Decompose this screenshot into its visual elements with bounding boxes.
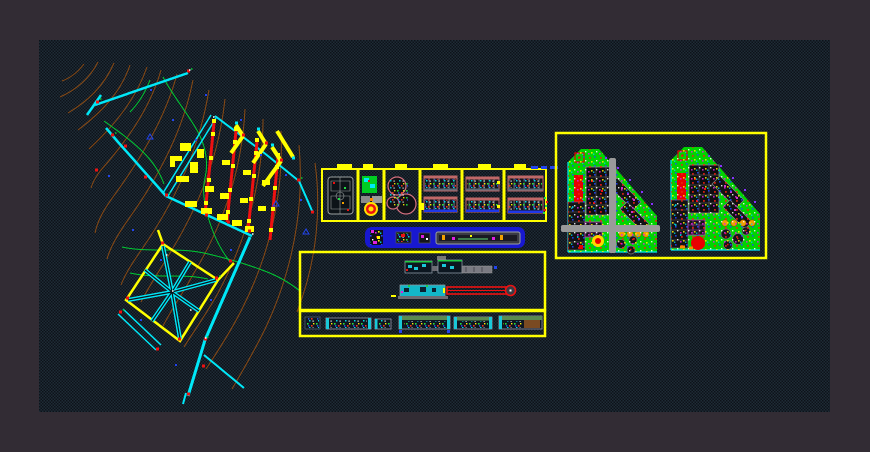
elevation-item-2: [326, 318, 371, 329]
panel-housing-block-plan-c[interactable]: [508, 176, 548, 213]
elevation-item-6: [499, 316, 542, 329]
gray-road-horizontal: [561, 225, 660, 232]
building-sections-box[interactable]: [300, 252, 545, 310]
panel-cluster-site-plan[interactable]: [387, 177, 416, 214]
cad-screenshot: [0, 0, 870, 452]
panel-sports-court-plan[interactable]: [328, 177, 353, 214]
development-block[interactable]: [170, 121, 295, 240]
blue-dashes: [531, 166, 558, 169]
elevation-item-4: [399, 316, 450, 333]
section-row-2: [391, 285, 516, 299]
bar-item-1: [370, 230, 383, 245]
site-plan[interactable]: [60, 62, 318, 404]
master-plan-with-red-circle[interactable]: [668, 144, 761, 251]
elevation-item-5: [454, 317, 492, 329]
panel-housing-block-plan-a[interactable]: [421, 176, 457, 212]
diamond-park[interactable]: [126, 230, 234, 341]
park-radial-paths: [128, 246, 216, 339]
elevation-thumbnails-bar[interactable]: [365, 227, 525, 248]
bar-item-4-long-elevation: [436, 232, 520, 244]
bar-item-3: [419, 233, 430, 243]
bar-item-2: [396, 232, 411, 243]
panel-pool-and-logo-plan[interactable]: [361, 176, 382, 216]
small-elevations-strip[interactable]: [300, 311, 545, 336]
section-row-1: [405, 256, 497, 273]
blue-dot-markers: [108, 90, 302, 365]
red-circle-marker: [691, 236, 705, 250]
elevation-item-3: [375, 319, 391, 329]
road-network: [87, 73, 313, 404]
detail-panel-strip[interactable]: [322, 164, 558, 221]
contour-lines: [60, 62, 318, 389]
park-outline: [126, 230, 234, 341]
gray-road-vertical: [609, 158, 616, 253]
drawing-layer: [0, 0, 870, 452]
panel-housing-block-plan-b[interactable]: [466, 177, 500, 212]
elevation-item-1: [305, 317, 320, 329]
master-plan-pair-box[interactable]: [556, 133, 766, 258]
master-plan-with-road-overlay[interactable]: [561, 146, 660, 254]
